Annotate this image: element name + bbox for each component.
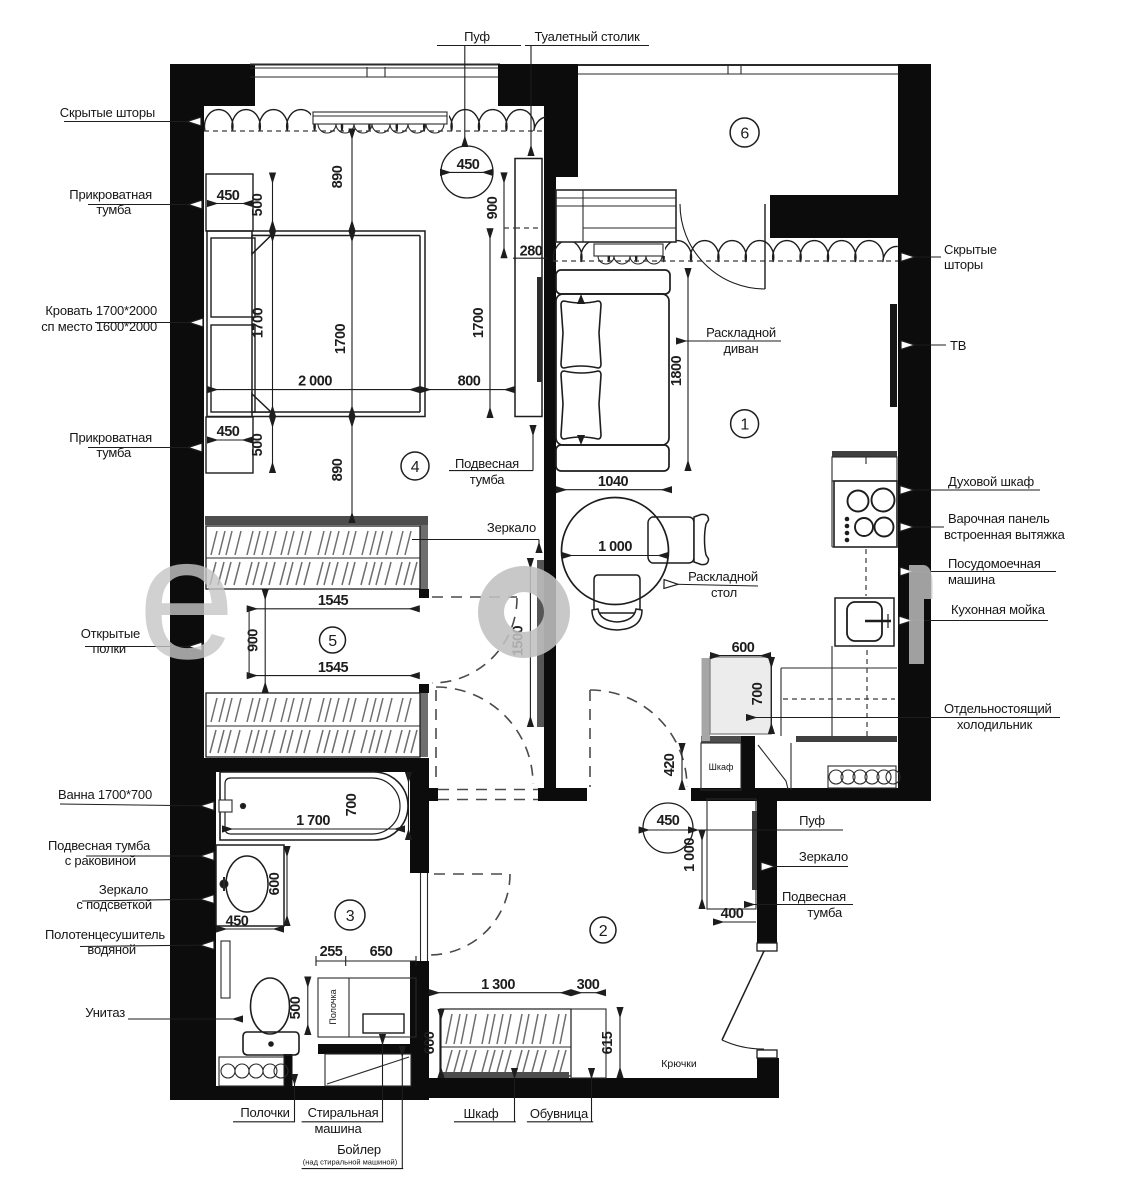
svg-text:Прикроватная: Прикроватная	[69, 430, 152, 445]
svg-text:с подсветкой: с подсветкой	[76, 897, 152, 912]
svg-text:Духовой шкаф: Духовой шкаф	[948, 474, 1034, 489]
svg-text:450: 450	[226, 914, 249, 930]
svg-text:450: 450	[217, 188, 240, 204]
svg-text:е: е	[138, 501, 235, 696]
svg-text:1 000: 1 000	[682, 838, 698, 872]
svg-text:сп место 1600*2000: сп место 1600*2000	[41, 319, 157, 334]
svg-text:600: 600	[732, 640, 755, 656]
svg-text:Зеркало: Зеркало	[799, 849, 848, 864]
svg-text:Кровать 1700*2000: Кровать 1700*2000	[45, 303, 157, 318]
svg-text:1: 1	[740, 417, 749, 434]
svg-text:Полочка: Полочка	[328, 989, 338, 1024]
svg-text:1 000: 1 000	[598, 539, 632, 555]
svg-text:Туалетный столик: Туалетный столик	[534, 29, 640, 44]
svg-text:450: 450	[457, 157, 480, 173]
svg-text:1040: 1040	[598, 474, 629, 490]
svg-text:машина: машина	[314, 1121, 362, 1136]
svg-text:Раскладной: Раскладной	[706, 325, 776, 340]
svg-text:диван: диван	[723, 341, 758, 356]
svg-text:Скрытые: Скрытые	[944, 242, 997, 257]
svg-text:1800: 1800	[669, 355, 685, 386]
svg-text:Зеркало: Зеркало	[99, 882, 148, 897]
svg-text:4: 4	[411, 459, 420, 476]
svg-text:шторы: шторы	[944, 257, 983, 272]
svg-text:500: 500	[250, 193, 266, 216]
svg-text:Бойлер: Бойлер	[337, 1142, 381, 1157]
svg-text:500: 500	[288, 996, 304, 1019]
svg-text:420: 420	[662, 753, 678, 776]
svg-text:Зеркало: Зеркало	[487, 520, 536, 535]
svg-text:900: 900	[246, 629, 262, 652]
svg-text:Стиральная: Стиральная	[308, 1105, 379, 1120]
svg-text:Пуф: Пуф	[464, 29, 490, 44]
svg-text:600: 600	[422, 1031, 438, 1054]
svg-text:700: 700	[344, 793, 360, 816]
svg-text:ТВ: ТВ	[950, 338, 966, 353]
svg-text:Подвесная: Подвесная	[455, 456, 519, 471]
svg-text:с раковиной: с раковиной	[65, 853, 136, 868]
svg-text:Подвесная тумба: Подвесная тумба	[48, 838, 151, 853]
svg-text:615: 615	[600, 1031, 616, 1054]
svg-text:890: 890	[330, 458, 346, 481]
svg-text:Ванна 1700*700: Ванна 1700*700	[58, 787, 152, 802]
svg-text:1 700: 1 700	[296, 813, 330, 829]
svg-text:холодильник: холодильник	[957, 717, 1033, 732]
svg-text:водяной: водяной	[87, 942, 136, 957]
svg-text:Обувница: Обувница	[530, 1106, 589, 1121]
svg-text:Унитаз: Унитаз	[85, 1005, 125, 1020]
svg-text:450: 450	[217, 424, 240, 440]
svg-text:1700: 1700	[471, 307, 487, 338]
svg-text:Скрытые шторы: Скрытые шторы	[60, 105, 155, 120]
svg-text:1 300: 1 300	[481, 977, 515, 993]
svg-text:500: 500	[250, 433, 266, 456]
svg-text:300: 300	[577, 977, 600, 993]
svg-text:Варочная панель: Варочная панель	[948, 511, 1050, 526]
svg-text:Шкаф: Шкаф	[463, 1106, 499, 1121]
svg-text:тумба: тумба	[470, 472, 506, 487]
svg-text:900: 900	[485, 196, 501, 219]
svg-text:Кухонная мойка: Кухонная мойка	[951, 602, 1046, 617]
svg-text:5: 5	[328, 633, 337, 650]
svg-text:600: 600	[267, 872, 283, 895]
svg-text:Открытые: Открытые	[81, 626, 140, 641]
svg-text:1545: 1545	[318, 593, 349, 609]
svg-text:Прикроватная: Прикроватная	[69, 187, 152, 202]
svg-text:Пуф: Пуф	[799, 813, 825, 828]
svg-text:2: 2	[599, 923, 608, 940]
svg-text:2 000: 2 000	[298, 374, 332, 390]
svg-text:800: 800	[458, 374, 481, 390]
svg-text:1700: 1700	[251, 307, 267, 338]
svg-text:Посудомоечная: Посудомоечная	[948, 556, 1041, 571]
svg-text:(над стиральной машиной): (над стиральной машиной)	[303, 1158, 398, 1167]
svg-text:встроенная вытяжка: встроенная вытяжка	[944, 527, 1066, 542]
svg-text:Отдельностоящий: Отдельностоящий	[944, 701, 1052, 716]
svg-text:700: 700	[750, 682, 766, 705]
svg-text:Шкаф: Шкаф	[709, 762, 734, 772]
svg-text:3: 3	[346, 908, 355, 925]
svg-text:1545: 1545	[318, 660, 349, 676]
svg-text:400: 400	[721, 906, 744, 922]
svg-text:890: 890	[330, 165, 346, 188]
svg-text:280: 280	[520, 244, 543, 260]
svg-text:1700: 1700	[333, 323, 349, 354]
svg-text:6: 6	[740, 126, 749, 143]
svg-text:тумба: тумба	[807, 905, 843, 920]
svg-text:650: 650	[370, 944, 393, 960]
svg-text:450: 450	[657, 813, 680, 829]
svg-text:Раскладной: Раскладной	[688, 569, 758, 584]
svg-text:Подвесная: Подвесная	[782, 889, 846, 904]
svg-text:255: 255	[320, 944, 343, 960]
svg-text:Крючки: Крючки	[661, 1058, 697, 1070]
svg-text:полки: полки	[92, 641, 126, 656]
svg-text:Полотенцесушитель: Полотенцесушитель	[45, 927, 165, 942]
svg-text:Полочки: Полочки	[240, 1105, 289, 1120]
svg-text:стол: стол	[711, 585, 737, 600]
svg-text:машина: машина	[948, 572, 996, 587]
